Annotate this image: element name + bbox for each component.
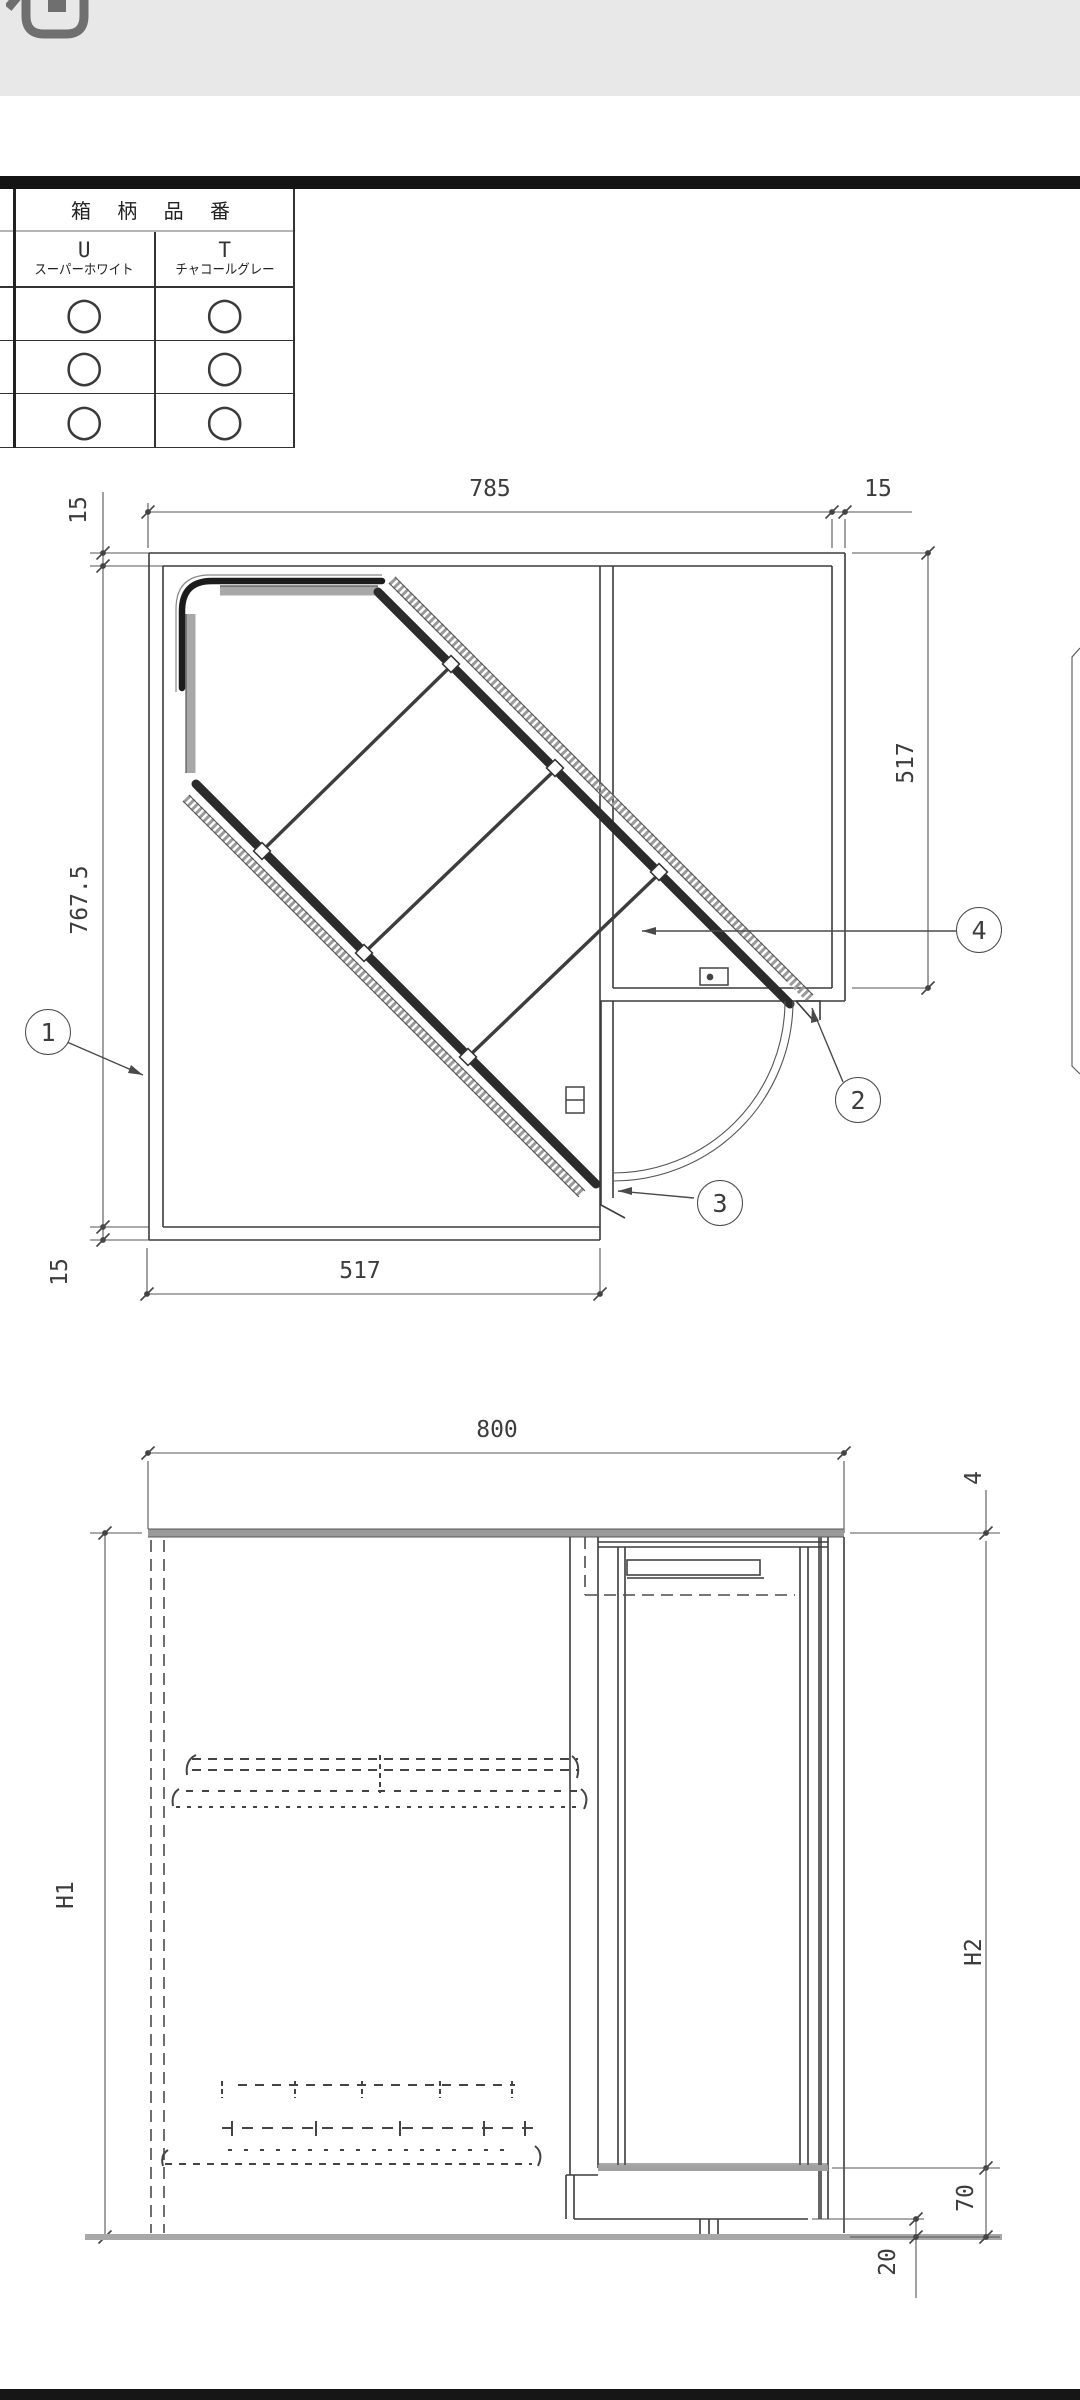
dim-plan-left-wall: 15	[66, 496, 92, 524]
dim-front-base: 70	[953, 2184, 979, 2212]
dim-front-top-panel: 4	[961, 1471, 987, 1485]
dim-plan-bottom-width: 517	[339, 1258, 381, 1284]
dim-plan-width: 785	[469, 476, 511, 502]
plan-view-drawing	[67, 492, 956, 1301]
bottom-bar	[0, 2389, 1080, 2400]
dim-front-width: 800	[476, 1417, 518, 1443]
callout-2: 2	[835, 1077, 881, 1123]
callout-1: 1	[25, 1009, 71, 1055]
callout-4: 4	[956, 907, 1002, 953]
cad-linework	[0, 0, 1080, 2400]
dim-front-height-right: H2	[961, 1938, 987, 1966]
dim-plan-bottom-wall: 15	[47, 1258, 73, 1286]
drawing-page: { "parts_table": { "title": "箱 柄 品 番", "…	[0, 0, 1080, 2400]
dim-front-height-left: H1	[53, 1881, 79, 1909]
callout-3: 3	[697, 1180, 743, 1226]
front-view-drawing	[85, 1447, 1002, 2299]
dim-plan-right-wall: 15	[864, 476, 892, 502]
dim-front-foot: 20	[875, 2248, 901, 2276]
dim-plan-right-depth: 517	[893, 742, 919, 784]
clipped-right-drawing	[1072, 648, 1080, 1074]
dim-plan-depth: 767.5	[67, 865, 93, 934]
